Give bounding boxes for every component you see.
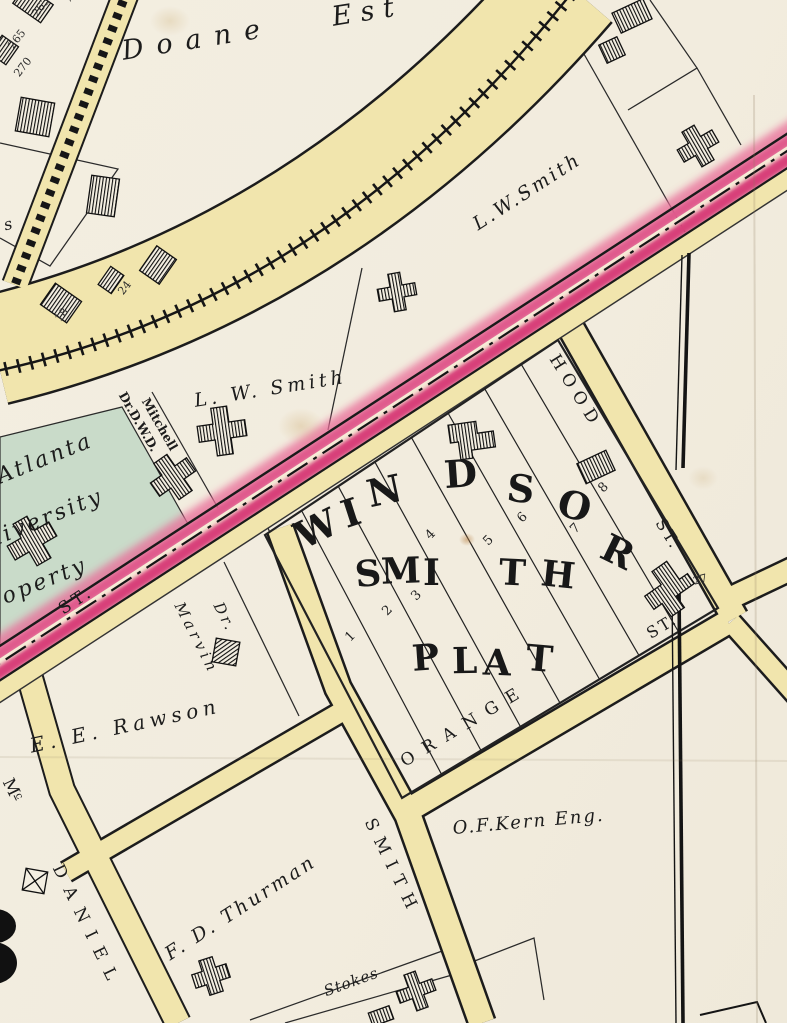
plat-letter: T <box>498 554 527 591</box>
plat-letter: A <box>482 645 511 682</box>
plat-letter: N <box>363 469 405 513</box>
plat-letter: S <box>505 469 536 510</box>
map-canvas: Doane Est L.W.Smith L. W. Smith E. E. Ra… <box>0 0 787 1023</box>
railroad-spur <box>15 0 128 285</box>
plat-letter: T <box>524 640 554 678</box>
plat-letter: L <box>452 643 478 679</box>
cropped-corner-glyph <box>0 909 17 984</box>
plat-letter: P <box>411 639 441 677</box>
parcel-number: 27 <box>692 572 708 586</box>
plat-letter: M <box>380 552 421 589</box>
plat-letter: I <box>423 555 440 591</box>
plat-letter: D <box>443 454 479 494</box>
plat-letter: H <box>539 555 577 594</box>
plat-letter: S <box>353 555 383 594</box>
